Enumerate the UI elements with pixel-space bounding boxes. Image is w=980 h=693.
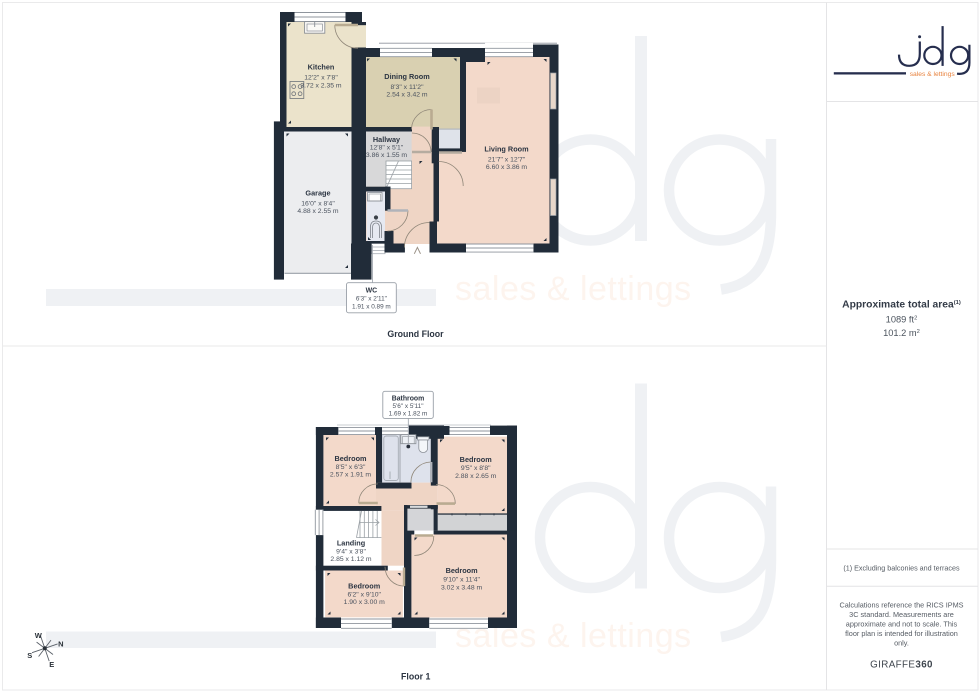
svg-text:Bedroom: Bedroom: [348, 581, 381, 590]
svg-text:Kitchen: Kitchen: [308, 63, 335, 72]
svg-text:5'6" x 5'11": 5'6" x 5'11": [392, 403, 423, 410]
svg-text:3C standard. Measurements are: 3C standard. Measurements are: [849, 610, 954, 619]
svg-text:3.86 x 1.55 m: 3.86 x 1.55 m: [366, 152, 408, 159]
svg-text:only.: only.: [894, 639, 909, 648]
svg-text:E: E: [49, 660, 54, 669]
svg-text:Bedroom: Bedroom: [446, 566, 479, 575]
svg-text:sales & lettings: sales & lettings: [455, 270, 692, 308]
svg-text:4.88 x 2.55 m: 4.88 x 2.55 m: [297, 208, 339, 215]
svg-text:3.02 x 3.48 m: 3.02 x 3.48 m: [441, 584, 483, 591]
svg-text:9'5" x 8'8": 9'5" x 8'8": [461, 465, 491, 472]
svg-text:8'5" x 6'3": 8'5" x 6'3": [336, 464, 366, 471]
svg-text:Floor 1: Floor 1: [401, 672, 430, 682]
svg-text:21'7" x 12'7": 21'7" x 12'7": [488, 157, 526, 164]
svg-text:1.69 x 1.82 m: 1.69 x 1.82 m: [389, 411, 428, 418]
svg-text:2.88 x 2.65 m: 2.88 x 2.65 m: [455, 473, 497, 480]
svg-text:2.85 x 1.12 m: 2.85 x 1.12 m: [330, 556, 372, 563]
svg-text:W: W: [35, 631, 43, 640]
svg-text:1089 ft2: 1089 ft2: [886, 315, 918, 325]
svg-text:(1) Excluding balconies and te: (1) Excluding balconies and terraces: [843, 564, 960, 573]
svg-text:approximate and not to scale.: approximate and not to scale. This: [846, 620, 958, 629]
svg-text:Hallway: Hallway: [373, 135, 401, 144]
svg-text:Bathroom: Bathroom: [392, 395, 425, 402]
svg-text:Calculations reference the RIC: Calculations reference the RICS IPMS: [839, 601, 963, 610]
svg-text:6'3" x 2'11": 6'3" x 2'11": [356, 296, 387, 303]
svg-text:101.2 m2: 101.2 m2: [883, 328, 920, 338]
svg-text:16'0" x 8'4": 16'0" x 8'4": [301, 200, 335, 207]
svg-text:9'4" x 3'8": 9'4" x 3'8": [336, 548, 366, 555]
svg-text:Bedroom: Bedroom: [460, 455, 493, 464]
svg-text:Landing: Landing: [337, 538, 365, 547]
svg-text:GIRAFFE360: GIRAFFE360: [870, 660, 933, 671]
svg-text:12'8" x 5'1": 12'8" x 5'1": [370, 145, 404, 152]
svg-text:3.72 x 2.35 m: 3.72 x 2.35 m: [300, 82, 342, 89]
svg-text:6'2" x 9'10": 6'2" x 9'10": [347, 592, 381, 599]
svg-text:sales & lettings: sales & lettings: [910, 71, 956, 78]
svg-text:2.57 x 1.91 m: 2.57 x 1.91 m: [330, 471, 372, 478]
svg-text:Garage: Garage: [305, 189, 330, 198]
svg-text:6.60 x 3.86 m: 6.60 x 3.86 m: [486, 164, 528, 171]
svg-text:floor plan is intended for ill: floor plan is intended for illustration: [845, 629, 958, 638]
svg-text:WC: WC: [366, 287, 378, 294]
svg-text:1.91 x 0.89 m: 1.91 x 0.89 m: [352, 303, 391, 310]
svg-text:Approximate total area(1): Approximate total area(1): [842, 300, 961, 311]
svg-text:N: N: [58, 639, 63, 648]
svg-text:Bedroom: Bedroom: [334, 454, 367, 463]
svg-text:Dining Room: Dining Room: [384, 72, 430, 81]
svg-text:Ground Floor: Ground Floor: [387, 329, 444, 339]
svg-text:12'2" x 7'8": 12'2" x 7'8": [304, 74, 338, 81]
svg-text:Living Room: Living Room: [484, 145, 529, 154]
svg-text:2.54 x 3.42 m: 2.54 x 3.42 m: [386, 92, 428, 99]
svg-text:8'3" x 11'2": 8'3" x 11'2": [391, 84, 425, 91]
svg-text:1.90 x 3.00 m: 1.90 x 3.00 m: [344, 599, 386, 606]
svg-text:9'10" x 11'4": 9'10" x 11'4": [443, 577, 480, 584]
svg-text:S: S: [27, 651, 32, 660]
